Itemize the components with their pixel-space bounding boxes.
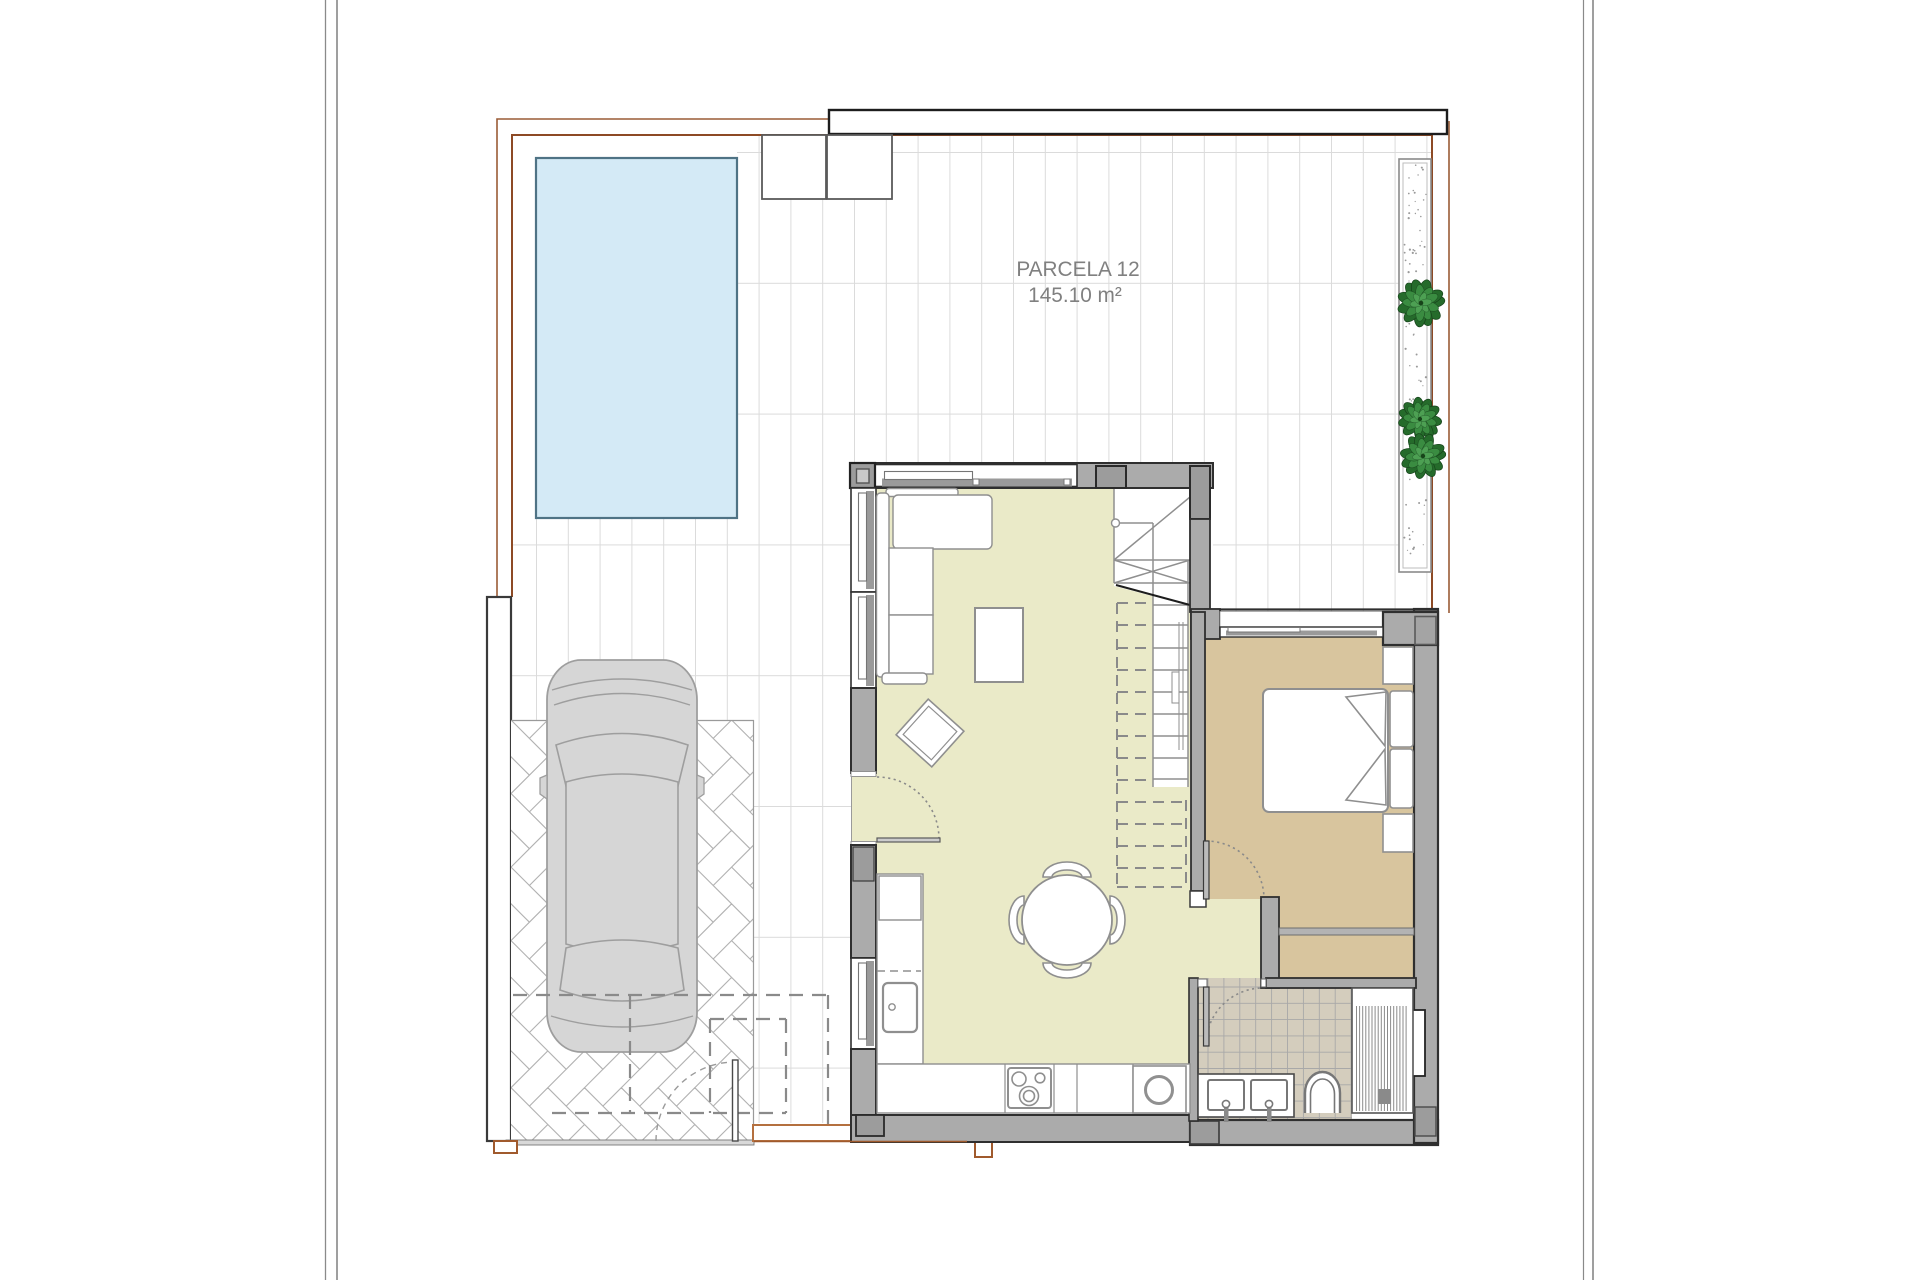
- svg-text:PARCELA 12: PARCELA 12: [1016, 258, 1139, 281]
- svg-text:145.10 m²: 145.10 m²: [1028, 284, 1122, 307]
